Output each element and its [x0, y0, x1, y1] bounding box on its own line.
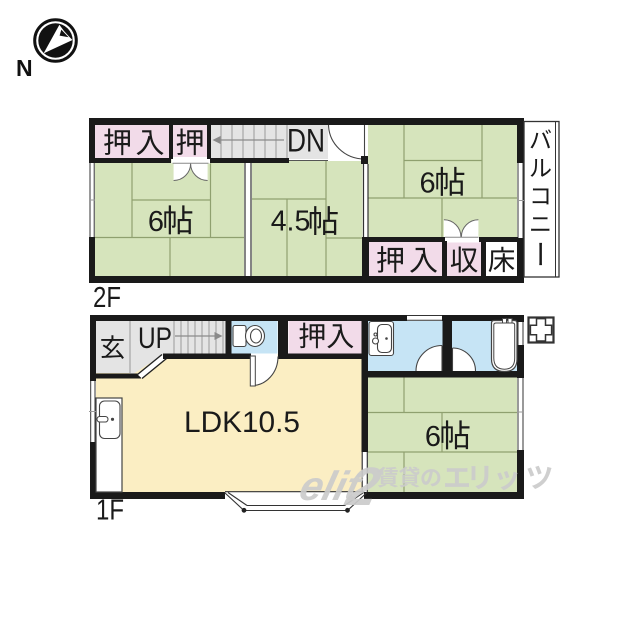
svg-text:1F: 1F	[96, 495, 124, 527]
svg-text:2F: 2F	[93, 282, 121, 314]
svg-text:6: 6	[425, 421, 441, 453]
svg-text:UP: UP	[138, 322, 172, 355]
svg-text:6: 6	[148, 206, 164, 238]
svg-text:4.5: 4.5	[271, 206, 311, 238]
svg-text:DN: DN	[287, 123, 325, 159]
svg-text:N: N	[16, 55, 33, 81]
svg-text:LDK10.5: LDK10.5	[184, 406, 300, 439]
svg-text:6: 6	[420, 168, 436, 200]
